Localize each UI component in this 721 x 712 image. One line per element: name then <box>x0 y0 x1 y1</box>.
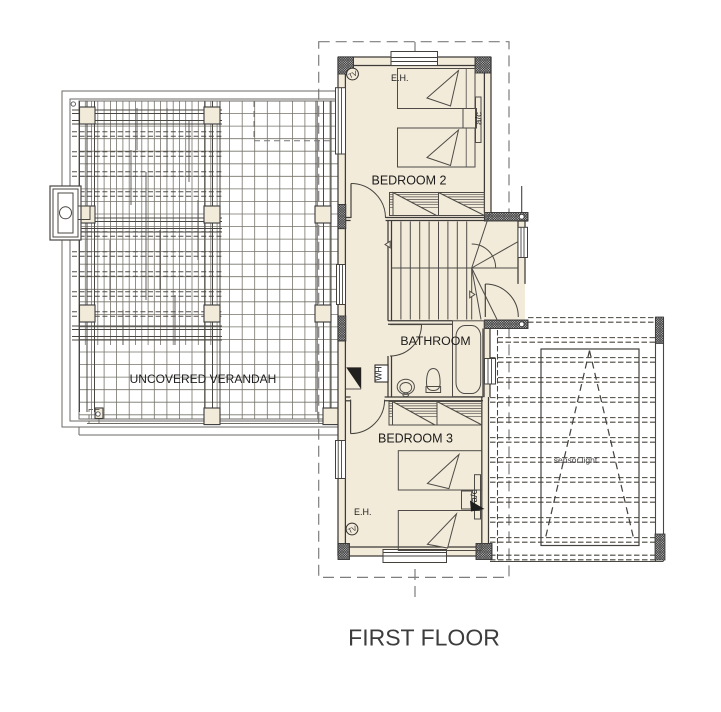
svg-text:WH: WH <box>374 366 384 380</box>
svg-text:a/c: a/c <box>469 489 480 502</box>
svg-text:UNCOVERED VERANDAH: UNCOVERED VERANDAH <box>130 372 277 386</box>
svg-text:BEDROOM 2: BEDROOM 2 <box>371 174 446 188</box>
svg-text:E.H.: E.H. <box>391 73 409 83</box>
svg-text:FIRST FLOOR: FIRST FLOOR <box>348 625 500 651</box>
svg-text:a/c: a/c <box>474 112 485 125</box>
svg-text:BATHROOM: BATHROOM <box>400 334 470 348</box>
svg-text:BEDROOM 3: BEDROOM 3 <box>378 432 453 446</box>
svg-text:E.H.: E.H. <box>354 507 372 517</box>
svg-text:sensor light: sensor light <box>554 455 598 465</box>
